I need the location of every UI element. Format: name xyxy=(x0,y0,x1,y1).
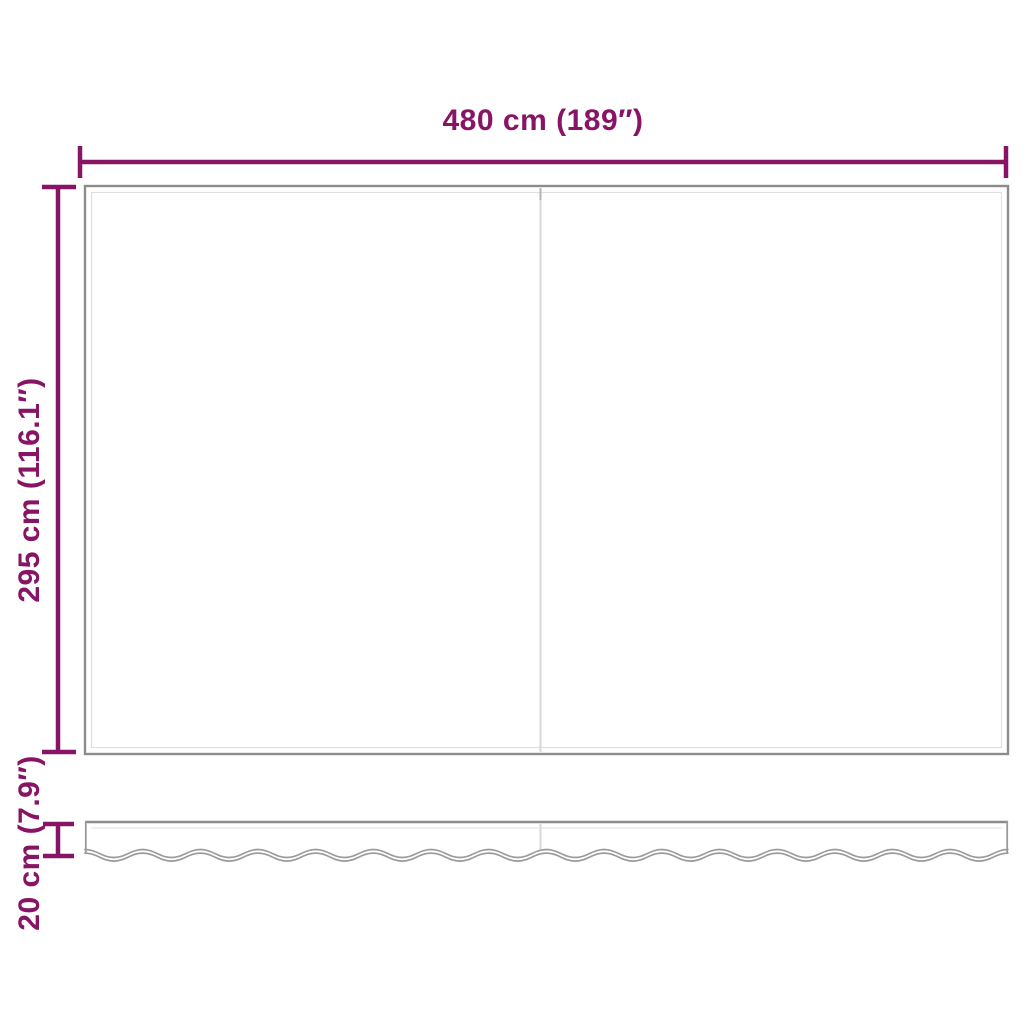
width-dimension-label: 480 cm (189″) xyxy=(443,104,644,138)
height-dimension-line xyxy=(42,186,76,753)
height-dimension-label: 295 cm (116.1″) xyxy=(13,377,47,602)
width-dimension-line xyxy=(80,146,1006,178)
valance-dimension-line xyxy=(43,824,74,856)
diagram-drawing xyxy=(0,0,1024,1024)
main-fabric-panel xyxy=(85,186,1008,754)
product-dimension-diagram: 480 cm (189″) 295 cm (116.1″) 20 cm (7.9… xyxy=(0,0,1024,1024)
valance-strip xyxy=(85,821,1008,861)
main-panel-outline xyxy=(85,186,1008,754)
valance-dimension-label: 20 cm (7.9″) xyxy=(13,755,47,930)
